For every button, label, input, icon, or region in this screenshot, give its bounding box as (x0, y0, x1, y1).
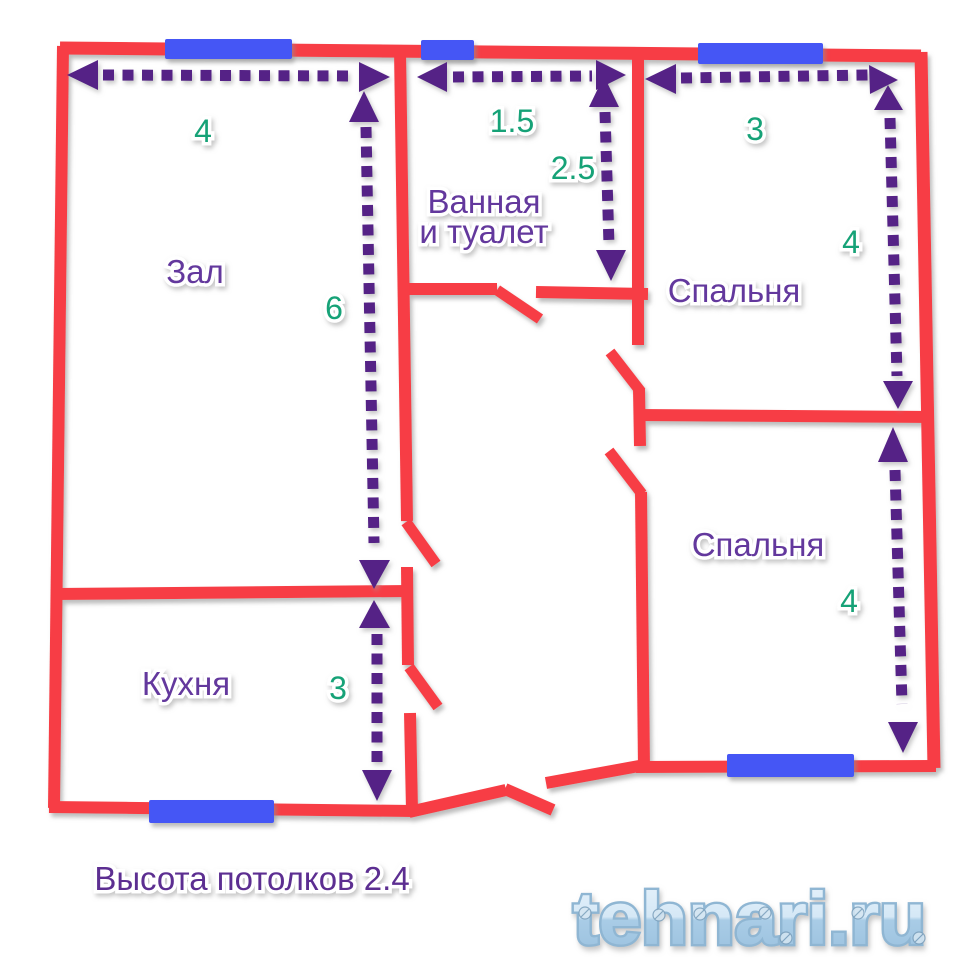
svg-text:Кухня: Кухня (142, 665, 230, 702)
svg-text:4: 4 (840, 583, 858, 619)
svg-text:и туалет: и туалет (419, 213, 548, 250)
svg-text:Высота потолков 2.4: Высота потолков 2.4 (94, 860, 409, 897)
svg-text:Зал: Зал (166, 253, 224, 290)
svg-text:Спальня: Спальня (668, 272, 801, 309)
svg-text:2.5: 2.5 (551, 150, 595, 186)
svg-text:6: 6 (325, 290, 343, 326)
svg-text:3: 3 (329, 670, 347, 706)
svg-text:4: 4 (842, 224, 860, 260)
svg-text:tehnari.ru: tehnari.ru (573, 877, 926, 961)
svg-text:3: 3 (746, 111, 764, 147)
svg-text:4: 4 (194, 113, 212, 149)
svg-text:1.5: 1.5 (490, 103, 534, 139)
svg-text:Спальня: Спальня (692, 526, 825, 563)
